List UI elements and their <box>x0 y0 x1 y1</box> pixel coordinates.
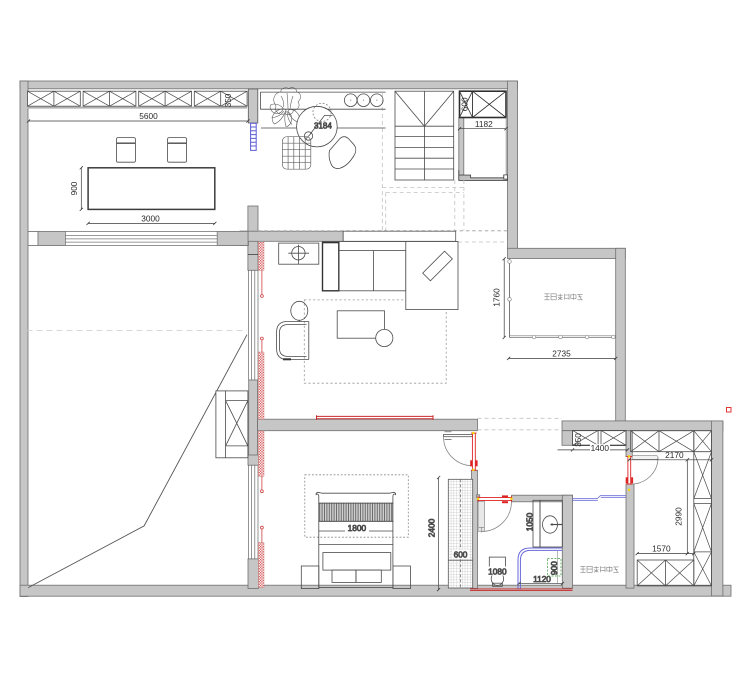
svg-text:900: 900 <box>549 561 559 575</box>
svg-text:350: 350 <box>223 93 233 107</box>
svg-text:2990: 2990 <box>674 507 684 526</box>
svg-text:3000: 3000 <box>141 214 160 224</box>
svg-text:1760: 1760 <box>492 288 502 307</box>
svg-text:5600: 5600 <box>139 111 158 121</box>
svg-text:2170: 2170 <box>665 450 684 460</box>
svg-text:3184: 3184 <box>314 122 332 131</box>
svg-text:600: 600 <box>454 550 468 560</box>
svg-text:1570: 1570 <box>652 544 671 554</box>
svg-text:2735: 2735 <box>552 349 571 359</box>
svg-text:900: 900 <box>69 181 79 195</box>
svg-text:1182: 1182 <box>475 119 493 129</box>
svg-text:600: 600 <box>460 97 470 111</box>
svg-text:1800: 1800 <box>348 523 367 533</box>
svg-text:1080: 1080 <box>488 567 507 577</box>
svg-text:350: 350 <box>573 433 583 447</box>
svg-text:1050: 1050 <box>525 512 535 531</box>
svg-text:1400: 1400 <box>591 443 610 453</box>
svg-text:2400: 2400 <box>427 518 437 537</box>
